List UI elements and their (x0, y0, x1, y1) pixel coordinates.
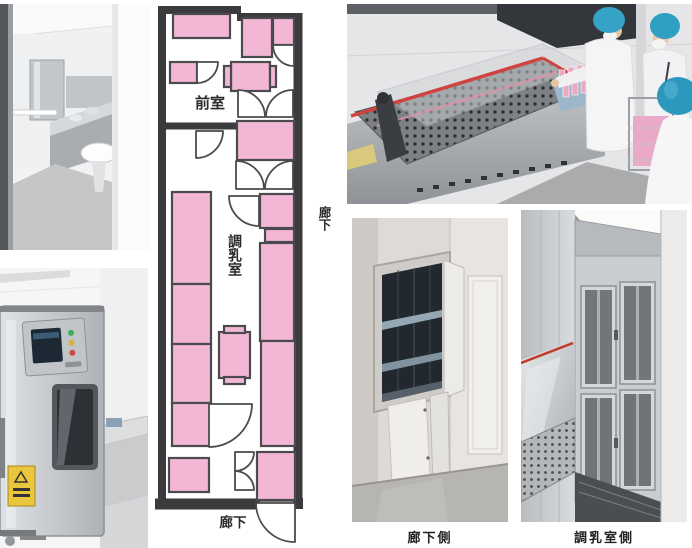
door-edge-dark (0, 4, 8, 256)
glass-door (620, 282, 655, 384)
cabinet-tower (575, 220, 661, 502)
door-frame (112, 4, 118, 256)
pipe-valve (5, 536, 15, 546)
equipment-block (172, 284, 211, 344)
equipment-block (172, 403, 211, 446)
table-side (270, 66, 276, 87)
handrail (13, 110, 57, 115)
prep-room-label: 調乳室 (226, 233, 242, 276)
photo-anteroom-sink-art (0, 4, 150, 256)
photo-corridor-side-art (352, 218, 508, 522)
pass-through-block (237, 121, 294, 160)
photo-anteroom-sink (0, 4, 150, 256)
hatch-door-ajar (444, 260, 464, 398)
hinge (426, 456, 429, 459)
anteroom-label: 前室 (195, 94, 225, 112)
equipment-block (260, 243, 294, 341)
equipment-block (260, 194, 294, 228)
photo-washing-line-art (347, 4, 692, 204)
glass-door (620, 390, 655, 490)
pass-through-hatch (374, 252, 464, 412)
counter-item (70, 115, 82, 122)
caption-corridor-side: 廊下側 (352, 527, 508, 546)
table-side (224, 66, 231, 87)
page: 前室 調乳室 廊下 廊下 (0, 0, 692, 548)
counter-bin (106, 418, 122, 427)
photo-washing-line (347, 4, 692, 204)
sink-basin (81, 143, 117, 163)
equipment-block (265, 229, 294, 242)
glass-door (581, 286, 616, 388)
corridor-bottom-label: 廊下 (220, 514, 247, 531)
equipment-block (172, 344, 211, 403)
door-handle (614, 438, 618, 448)
photo-prep-room-side-art (521, 210, 687, 522)
worker-mask (652, 39, 666, 49)
steel-splashback (66, 76, 112, 108)
photo-prep-room-side (521, 210, 687, 522)
work-table (231, 62, 270, 91)
photo-corridor-side (352, 218, 508, 522)
control-panel (22, 318, 88, 376)
equipment-block (242, 18, 272, 57)
floor-plan: 前室 調乳室 廊下 廊下 (150, 0, 346, 548)
table-side (224, 377, 245, 384)
photo-sterilizer-art (0, 268, 148, 548)
pipe (0, 530, 36, 536)
table-side (224, 326, 245, 333)
counter-item (85, 107, 99, 115)
machine-top-edge (0, 306, 104, 312)
right-wall (661, 210, 687, 522)
equipment-block (261, 341, 295, 446)
photo1-bottom (0, 250, 150, 256)
equipment-block (169, 458, 209, 492)
equipment-block (173, 14, 230, 38)
warning-text-bar (13, 488, 30, 491)
hinge (423, 408, 426, 411)
prep-table (219, 332, 250, 378)
worker-hand (551, 79, 559, 87)
warning-text-bar (13, 494, 30, 497)
equipment-block (273, 18, 294, 45)
photo-sterilizer (0, 268, 148, 548)
corridor-side-label: 廊下 (317, 205, 332, 232)
pipe (20, 536, 46, 540)
floor-plan-art: 前室 調乳室 廊下 廊下 (150, 0, 346, 548)
bouffant-cap (650, 13, 680, 39)
door-edge-light (8, 4, 13, 256)
counter-base (100, 434, 148, 508)
equipment-block (170, 62, 197, 83)
machine-handle (0, 418, 5, 478)
equipment-block (172, 192, 211, 284)
hatch-opening (382, 263, 442, 402)
arm-joint (377, 92, 389, 104)
door-handle (614, 330, 618, 340)
cap-highlight (664, 81, 678, 99)
caption-prep-room-side: 調乳室側 (521, 527, 687, 546)
equipment-block (257, 452, 295, 500)
bouffant-cap (593, 7, 625, 33)
